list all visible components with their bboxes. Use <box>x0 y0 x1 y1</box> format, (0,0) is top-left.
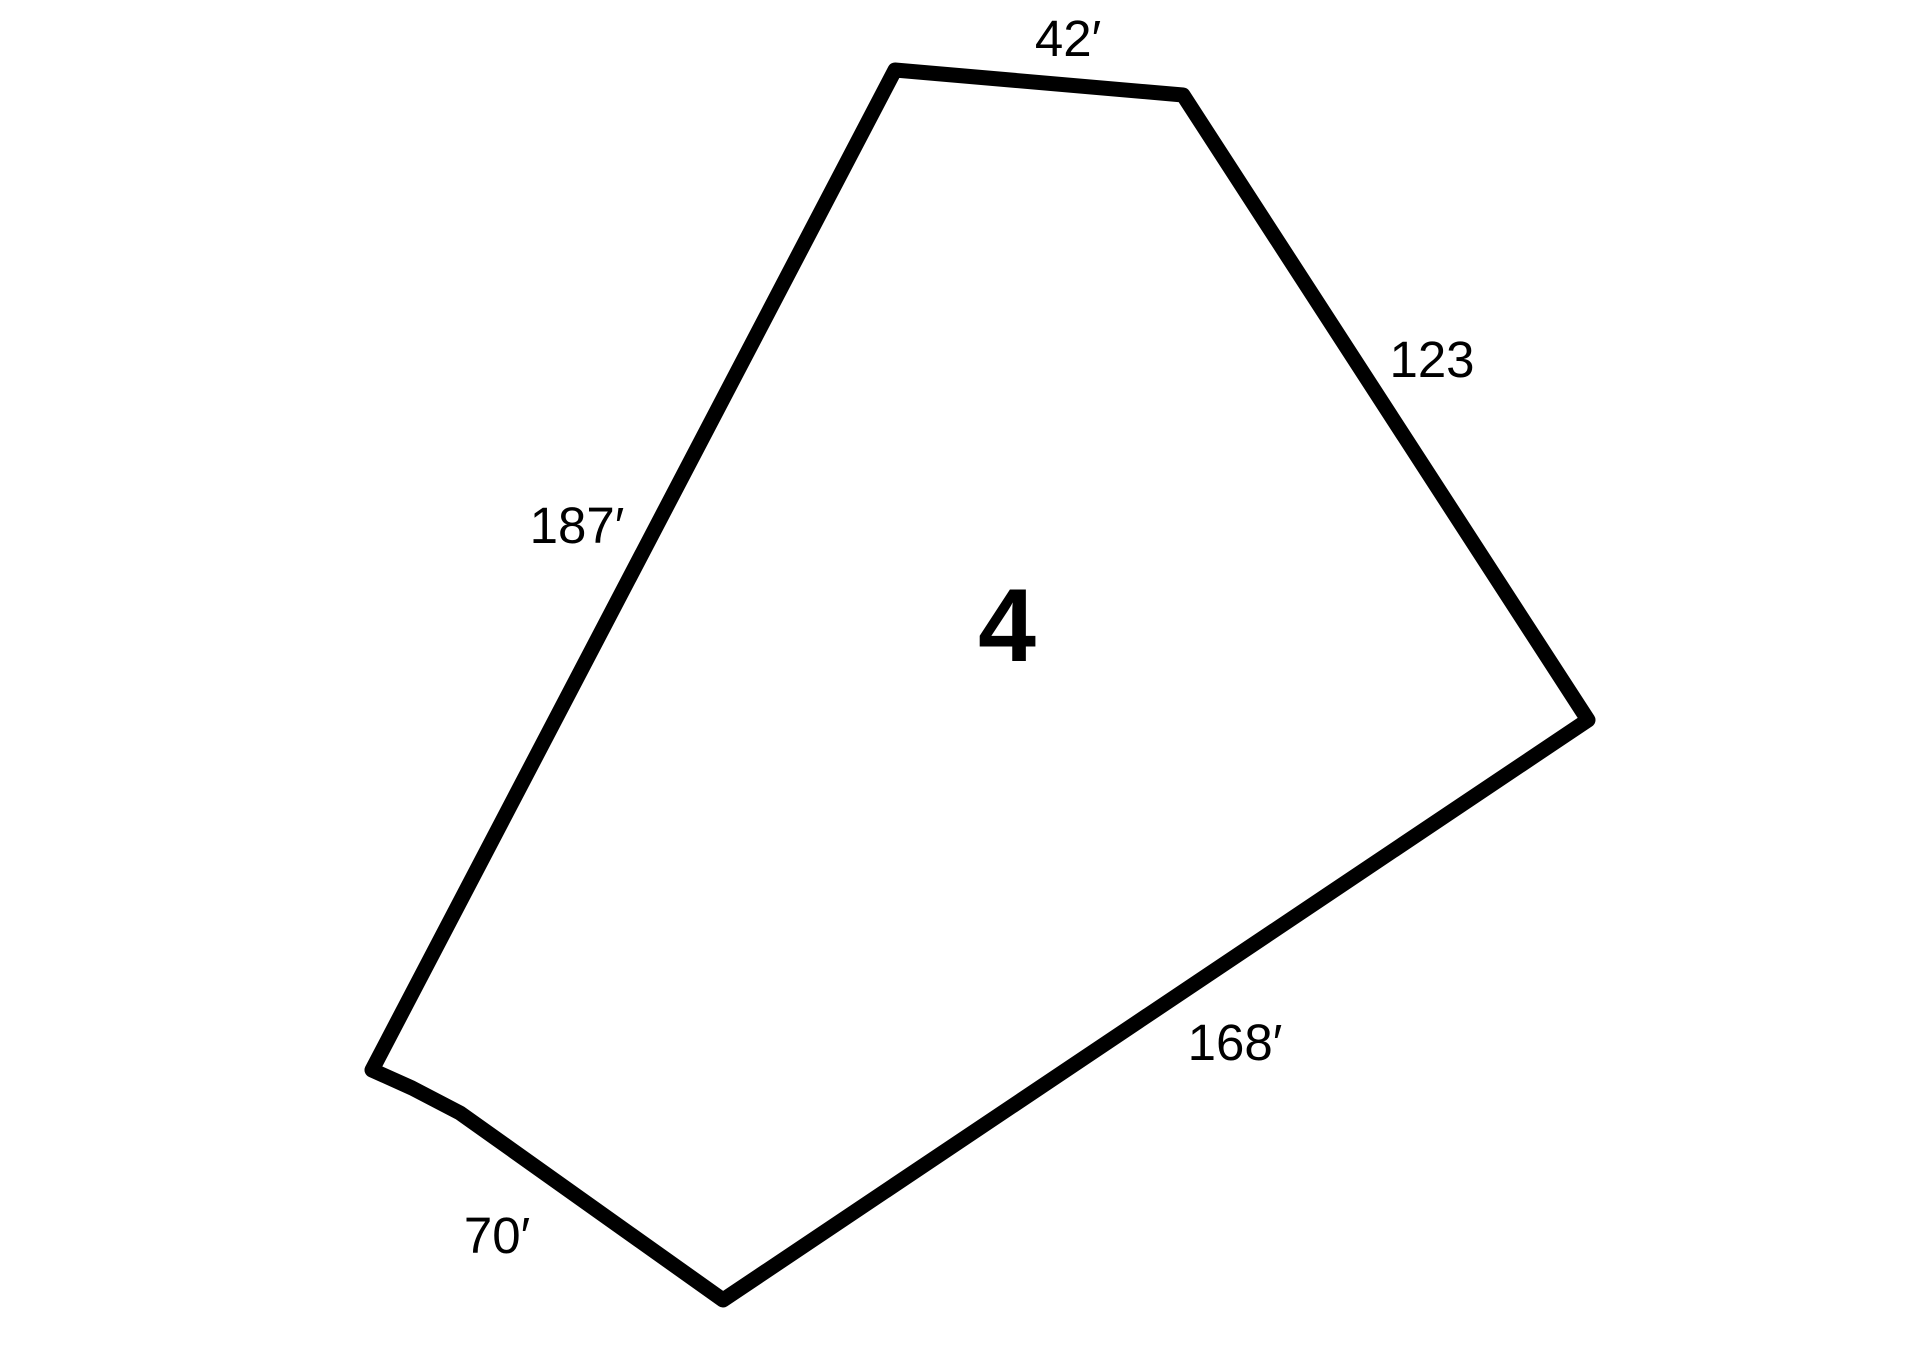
side-label-lower-left: 70′ <box>464 1207 530 1264</box>
parcel-number-label: 4 <box>978 568 1036 684</box>
diagram-canvas: 42′123168′70′187′ 4 <box>0 0 1920 1371</box>
side-label-lower-right: 168′ <box>1188 1014 1283 1071</box>
side-labels-group: 42′123168′70′187′ <box>464 10 1475 1264</box>
side-label-top: 42′ <box>1035 10 1101 67</box>
parcel-diagram: 42′123168′70′187′ 4 <box>0 0 1920 1371</box>
side-label-upper-right: 123 <box>1389 331 1474 388</box>
parcel-outline <box>372 70 1588 1300</box>
side-label-left: 187′ <box>530 497 625 554</box>
